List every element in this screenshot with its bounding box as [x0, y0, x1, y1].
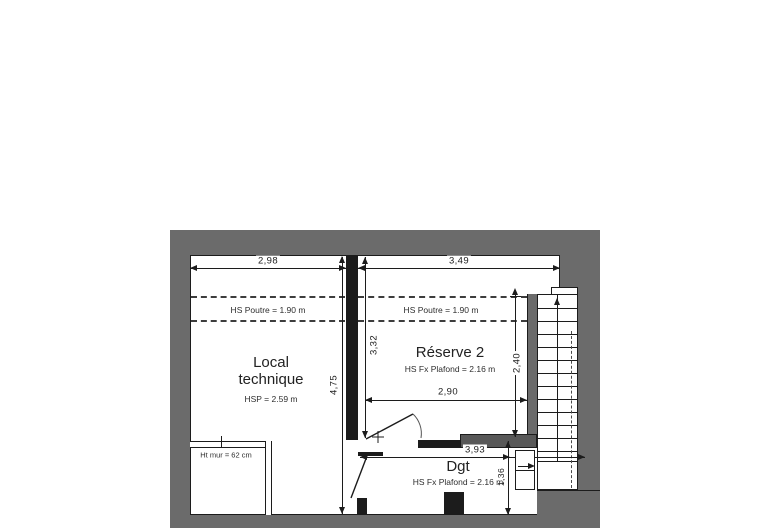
stair-headroom-dashed-line — [571, 331, 572, 488]
room-label-dgt: Dgt HS Fx Plafond = 2.16 m — [413, 458, 503, 487]
dim-tick — [510, 296, 521, 297]
dim-arrow-icon — [520, 397, 527, 403]
dim-line-height-middle — [365, 257, 366, 438]
dim-height-middle: 3,32 — [369, 333, 380, 357]
low-wall-horizontal — [190, 441, 272, 448]
dim-line-width-reserve — [358, 268, 560, 269]
floor-plan-canvas: Ht mur = 62 cm HS Poutre = 1.90 m HS Pou… — [0, 0, 768, 528]
dgt-door-jamb-stub — [357, 498, 367, 515]
stair-entry-step-divider — [516, 470, 534, 471]
room-title: Réserve 2 — [405, 344, 495, 361]
dim-arrow-icon — [505, 441, 511, 448]
dim-arrow-icon — [512, 430, 518, 437]
dim-arrow-icon — [553, 265, 560, 271]
dim-arrow-icon — [505, 508, 511, 515]
room-title: Local — [238, 354, 303, 371]
dim-arrow-icon — [360, 454, 367, 460]
dim-arrow-icon — [512, 288, 518, 295]
dim-height-left: 4,75 — [329, 373, 340, 397]
room-label-reserve2: Réserve 2 HS Fx Plafond = 2.16 m — [405, 344, 495, 374]
dim-arrow-icon — [339, 507, 345, 514]
dim-arrow-icon — [358, 265, 365, 271]
dim-arrow-icon — [339, 256, 345, 263]
dim-width-reserve-inner: 2,90 — [436, 387, 460, 398]
dim-arrow-icon — [362, 257, 368, 264]
beam-dashed-line-left-lower — [191, 320, 345, 322]
dim-arrow-icon — [190, 265, 197, 271]
bottom-wall — [170, 515, 600, 528]
dim-line-width-local — [191, 268, 346, 269]
beam-dashed-line-right-lower — [358, 320, 527, 322]
room-sublabel: HSP = 2.59 m — [238, 394, 303, 404]
bottom-right-wall — [537, 490, 600, 528]
dim-arrow-icon — [362, 431, 368, 438]
beam-note-left: HS Poutre = 1.90 m — [231, 305, 306, 315]
dim-width-reserve: 3,49 — [447, 256, 471, 267]
dim-line-width-reserve-inner — [365, 400, 527, 401]
low-wall-vertical — [265, 441, 272, 515]
dim-height-reserve: 2,40 — [512, 351, 523, 375]
stair-center-line — [557, 295, 558, 461]
central-partition-wall — [346, 255, 358, 440]
dim-length-dgt: 3,93 — [463, 445, 487, 456]
room-title: Dgt — [413, 458, 503, 475]
dim-line-height-dgt — [508, 441, 509, 515]
dim-arrow-icon — [365, 397, 372, 403]
stair-entry-right-arrow-icon — [528, 463, 535, 469]
room-sublabel: HS Fx Plafond = 2.16 m — [413, 477, 503, 487]
staircase — [537, 294, 578, 490]
room-label-local-technique: Local technique HSP = 2.59 m — [238, 354, 303, 404]
low-wall-note: Ht mur = 62 cm — [200, 451, 251, 460]
beam-dashed-line-right-upper — [358, 296, 527, 298]
reserve-bottom-wall-left — [418, 440, 462, 448]
dim-width-local: 2,98 — [256, 256, 280, 267]
room-sublabel: HS Fx Plafond = 2.16 m — [405, 364, 495, 374]
stair-direction-up-arrow-icon — [554, 298, 560, 305]
beam-note-right: HS Poutre = 1.90 m — [404, 305, 479, 315]
stair-side-wall — [527, 294, 537, 448]
beam-dashed-line-left-upper — [191, 296, 345, 298]
low-wall-tick — [221, 436, 222, 447]
dim-line-height-left — [342, 257, 343, 514]
room-title: technique — [238, 371, 303, 388]
dim-arrow-icon — [578, 454, 585, 460]
bottom-opening-jamb-stub — [444, 492, 464, 515]
